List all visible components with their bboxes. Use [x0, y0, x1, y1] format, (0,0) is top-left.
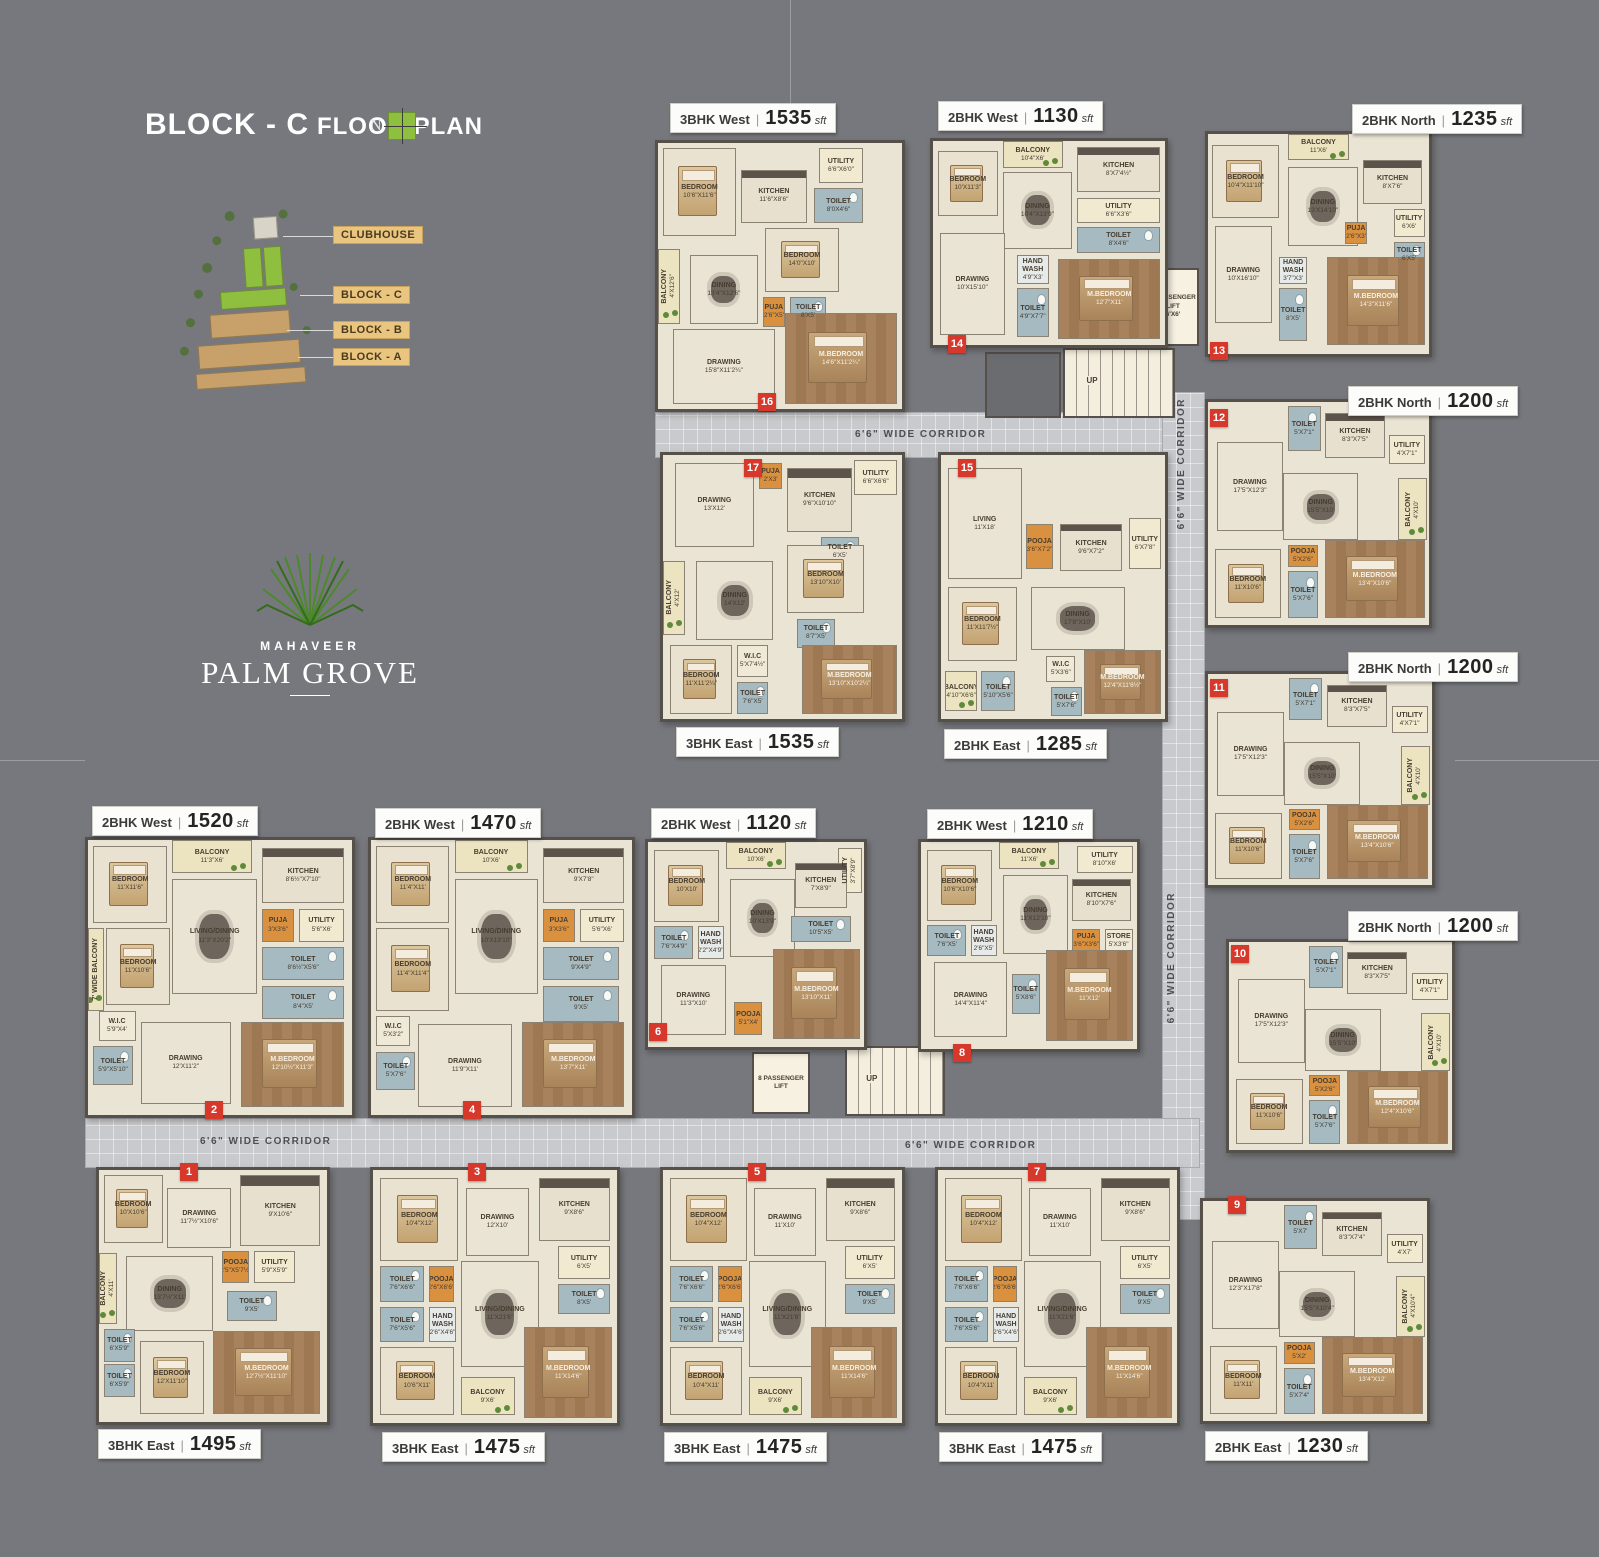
passenger-lift: 8 PASSENGERLIFT — [752, 1052, 810, 1114]
page-title-block: BLOCK - C — [145, 108, 309, 141]
room-label: BALCONY4'X12' — [666, 580, 682, 615]
page-title: BLOCK - CFLOOR PLAN — [145, 108, 483, 142]
room-kitchen: KITCHEN8'6½"X7'10" — [262, 848, 344, 903]
room-label: LIVING/DINING11'X21'6" — [475, 1306, 525, 1322]
room-label: 7' WIDE BALCONY — [92, 938, 100, 1000]
room-label: POOJA2'6"X6'6" — [429, 1276, 453, 1292]
room-label: TOILET8'7"X5' — [804, 625, 829, 641]
room-balcony: BALCONY10'X6' — [726, 842, 786, 869]
unit-8-number-badge: 8 — [953, 1044, 971, 1062]
unit-7-number-badge: 7 — [1028, 1163, 1046, 1181]
room-label: DINING13'4"X12'6" — [707, 282, 740, 298]
corridor-label: 6'6" WIDE CORRIDOR — [855, 429, 986, 440]
room-label: BEDROOM10'4"X11' — [963, 1373, 1000, 1389]
room-bedroom: BEDROOM11'X11'2¼" — [670, 645, 732, 714]
room-toilet: TOILET7'6"X6'6" — [670, 1266, 713, 1301]
room-label: W.I.C5'X3'2" — [383, 1023, 403, 1039]
room-pooja: POOJA5'X2'6" — [1289, 809, 1320, 830]
room-kitchen: KITCHEN8'X7'4½" — [1077, 147, 1161, 192]
room-toilet: TOILET9'X4'9" — [543, 947, 619, 980]
room-toilet: TOILET5'X7' — [1284, 1205, 1318, 1249]
room-label: M.BEDROOM13'4"X10'6" — [1353, 572, 1397, 588]
room-balcony: BALCONY10'X6' — [455, 840, 528, 873]
room-label: POOJA3'6"X7'2" — [1027, 538, 1053, 554]
unit-1-plan: BEDROOM10'X10'6"DRAWING11'7½"X10'6"KITCH… — [96, 1167, 330, 1425]
room-label: M.BEDROOM13'4"X10'6" — [1355, 834, 1399, 850]
room-label: UTILITY5'6"X6' — [308, 917, 334, 933]
room-label: UTILITY6'X5' — [856, 1255, 882, 1271]
room-w-i-c: W.I.C5'X3'6" — [1046, 656, 1075, 682]
room-label: TOILET8'X5' — [572, 1291, 597, 1307]
site-map-tree — [212, 236, 222, 246]
staircase: UP — [1063, 348, 1175, 418]
room-m-bedroom: M.BEDROOM13'7"X11' — [522, 1022, 624, 1107]
room-label: M.BEDROOM12'4"X10'6" — [1375, 1100, 1419, 1116]
unit-5-label: 3BHK East|1475sft — [664, 1432, 827, 1462]
site-map-block-a — [196, 366, 307, 390]
room-label: DRAWING15'8"X11'2¼" — [705, 359, 743, 375]
room-label: BALCONY9'X6' — [758, 1389, 793, 1405]
room-toilet: TOILET7'6"X4'9" — [654, 926, 693, 959]
room-puja: PUJA3'X3'6" — [543, 909, 574, 942]
room-toilet: TOILET9'X5' — [543, 986, 619, 1022]
room-store: STORE5'X3'6" — [1105, 929, 1133, 952]
unit-10-label: 2BHK North|1200sft — [1348, 911, 1518, 941]
room-hand-wash: HAND WASH4'9"X3' — [1017, 255, 1049, 284]
room-label: LIVING/DINING11'3"X20'2" — [190, 928, 240, 944]
room-bedroom: BEDROOM10'X10' — [654, 850, 719, 922]
room-label: HAND WASH2'2"X4'9" — [698, 931, 724, 955]
room-bedroom: BEDROOM14'0"X10' — [765, 228, 838, 292]
unit-12-number-badge: 12 — [1210, 409, 1228, 427]
room-label: BALCONY11'X6' — [1012, 848, 1047, 864]
room-label: BEDROOM10'4"X12' — [965, 1212, 1002, 1228]
site-map — [153, 184, 347, 401]
room-label: TOILET7'6"X5'6" — [389, 1317, 415, 1333]
north-indicator: N — [370, 112, 416, 140]
room-kitchen: KITCHEN8'10"X7'6" — [1072, 879, 1130, 920]
room-label: M.BEDROOM12'7½"X11'10" — [244, 1365, 288, 1381]
room-label: BALCONY4'X10' — [1428, 1025, 1444, 1060]
room-label: TOILET6'X5'9" — [107, 1373, 132, 1389]
unit-6-number-badge: 6 — [649, 1023, 667, 1041]
room-label: BALCONY4'X10' — [1405, 492, 1421, 527]
room-label: BEDROOM11'X11'2¼" — [683, 672, 720, 688]
unit-10-number-badge: 10 — [1231, 945, 1249, 963]
room-kitchen: KITCHEN9'6"X10'10" — [787, 468, 852, 531]
legend-connector-line — [283, 236, 333, 237]
room-bedroom: BEDROOM11'X11'6" — [93, 846, 167, 923]
room-label: TOILET9'X5' — [569, 996, 594, 1012]
room-label: DINING15'5"X10'4" — [1301, 1297, 1334, 1313]
room-label: DINING15'5"X10' — [1329, 1032, 1356, 1048]
unit-6-label: 2BHK West|1120sft — [651, 808, 816, 838]
legend-item-clubhouse: CLUBHOUSE — [333, 226, 423, 244]
room-label: BEDROOM11'X10'6" — [1229, 576, 1266, 592]
room-label: TOILET7'6"X5' — [740, 690, 765, 706]
room-label: DRAWING11'X10' — [768, 1214, 802, 1230]
room-label: UTILITY6'X5' — [1131, 1255, 1157, 1271]
room-bedroom: BEDROOM10'X11'3" — [938, 151, 998, 216]
room-dining: DINING11'X12'10" — [1003, 875, 1068, 954]
room-label: TOILET9'X5' — [239, 1298, 264, 1314]
room-dining: DINING10'4"X13'9" — [1003, 172, 1073, 250]
room-label: DRAWING14'4"X11'4" — [954, 992, 988, 1008]
room-m-bedroom: M.BEDROOM12'10½"X11'3" — [241, 1022, 344, 1107]
room-label: BEDROOM11'4"X11'4" — [394, 961, 431, 977]
room-hand-wash: HAND WASH3'7"X3' — [1279, 257, 1308, 283]
room-bedroom: BEDROOM10'4"X12' — [670, 1178, 746, 1261]
room-label: TOILET8'0X4'6" — [826, 198, 851, 214]
room-label: DRAWING11'7½"X10'6" — [180, 1210, 218, 1226]
room-label: DINING15'5"X10' — [1307, 499, 1334, 515]
room-label: KITCHEN8'6½"X7'10" — [286, 868, 321, 884]
room-label: M.BEDROOM12'10½"X11'3" — [270, 1056, 314, 1072]
room-bedroom: BEDROOM11'X10'6" — [1215, 813, 1282, 878]
room-label: M.BEDROOM14'6"X11'2¼" — [819, 351, 863, 367]
room-label: TOILET5'X7'6" — [1292, 849, 1317, 865]
room-drawing: DRAWING11'X10' — [754, 1188, 816, 1256]
room-label: TOILET5'X8'6" — [1013, 986, 1038, 1002]
room-label: M.BEDROOM12'4"X11'6½" — [1100, 674, 1144, 690]
room-label: TOILET8'4"X5' — [291, 994, 316, 1010]
room-label: BEDROOM10'X10'6" — [115, 1201, 152, 1217]
room-label: TOILET7'6"X6'6" — [954, 1276, 980, 1292]
room-label: KITCHEN8'3"X7'5" — [1339, 428, 1370, 444]
room-label: BALCONY11'X6' — [1301, 139, 1336, 155]
room-label: DINING13'7½"X11' — [154, 1286, 186, 1302]
room-label: KITCHEN7'X8'9" — [805, 877, 836, 893]
crease-line — [1455, 760, 1599, 761]
site-map-clubhouse — [253, 216, 278, 240]
room-label: DRAWING11'3"X10' — [676, 992, 710, 1008]
room-label: BALCONY11'3"X6' — [195, 849, 230, 865]
room-label: BEDROOM10'6"X11' — [399, 1373, 436, 1389]
room-label: BEDROOM10'X10' — [669, 878, 706, 894]
room-label: LIVING11'X18' — [973, 516, 996, 532]
room-label: TOILET5'9"X5'10" — [98, 1058, 128, 1074]
room-puja: PUJA2'6"X5' — [763, 297, 785, 326]
room-m-bedroom: M.BEDROOM11'X14'6" — [524, 1327, 612, 1418]
room-label: TOILET8'X5' — [1281, 307, 1306, 323]
room-label: W.I.C5'9"X4' — [107, 1018, 127, 1034]
unit-12-plan: TOILET5'X7'1"KITCHEN8'3"X7'5"UTILITY4'X7… — [1205, 399, 1432, 628]
room-label: TOILET6'X5' — [827, 544, 852, 560]
site-map-block-a — [198, 339, 301, 370]
corridor-label: 6'6" WIDE CORRIDOR — [905, 1140, 1036, 1151]
room-w-i-c: W.I.C5'X3'2" — [376, 1016, 410, 1046]
unit-13-label: 2BHK North|1235sft — [1352, 104, 1522, 134]
unit-7-label: 3BHK East|1475sft — [939, 1432, 1102, 1462]
room-label: POOJA5'X2'6" — [1291, 548, 1316, 564]
room-label: W.I.C5'X3'6" — [1051, 661, 1071, 677]
room-label: UTILITY6'X7'8" — [1132, 536, 1158, 552]
unit-15-label: 2BHK East|1285sft — [944, 729, 1107, 759]
room-pooja: POOJA5'1"X4' — [734, 1002, 762, 1035]
room-toilet: TOILET10'5"X5' — [791, 916, 851, 943]
room-bedroom: BEDROOM11'X10'6" — [1236, 1079, 1303, 1143]
room-toilet: TOILET8'7"X5' — [797, 619, 835, 648]
room-label: DINING15'5"X10' — [1309, 765, 1336, 781]
room-pooja: POOJA3'6"X7'2" — [1026, 524, 1053, 569]
unit-8-plan: BEDROOM10'6"X10'6"BALCONY11'X6'UTILITY8'… — [918, 839, 1140, 1052]
room-drawing: DRAWING12'3"X17'8" — [1212, 1241, 1279, 1329]
room-dining: DINING13'4"X12'6" — [690, 255, 758, 324]
room-label: KITCHEN9'X8'6" — [1120, 1201, 1151, 1217]
room-utility: UTILITY6'X5' — [845, 1246, 895, 1279]
room-utility: UTILITY6'X7'8" — [1129, 518, 1160, 568]
room-balcony: BALCONY11'X6' — [1288, 134, 1350, 160]
unit-11-plan: TOILET5'X7'1"KITCHEN8'3"X7'5"UTILITY4'X7… — [1205, 671, 1435, 888]
room-label: BEDROOM10'4"X12' — [690, 1212, 727, 1228]
room-label: BALCONY4'X11' — [100, 1271, 116, 1306]
room-label: POOJA2'6"X6'6" — [718, 1276, 742, 1292]
room-label: KITCHEN9'X8'6" — [845, 1201, 876, 1217]
room-drawing: DRAWING12'X11'2" — [141, 1022, 231, 1105]
room-kitchen: KITCHEN9'X8'6" — [1101, 1178, 1170, 1241]
room-label: PUJA2'6"X5' — [764, 304, 784, 320]
room-toilet: TOILET7'6"X5'6" — [670, 1307, 713, 1342]
room-utility: UTILITY4'X7'1" — [1392, 706, 1428, 733]
room-kitchen: KITCHEN9'6"X7'2" — [1060, 524, 1123, 572]
room-label: DRAWING11'9"X11' — [448, 1058, 482, 1074]
room-bedroom: BEDROOM11'4"X11'4" — [376, 928, 449, 1011]
room-label: BEDROOM13'10"X10' — [807, 571, 844, 587]
room-toilet: TOILET5'X7'6" — [1289, 834, 1320, 878]
unit-17-label: 3BHK East|1535sft — [676, 727, 839, 757]
room-bedroom: BEDROOM10'4"X11'10" — [1212, 145, 1278, 218]
room-label: DRAWING10'X16'10" — [1226, 267, 1260, 283]
room-label: TOILET8'6½"X5'6" — [287, 956, 318, 972]
corridor-label: 6'6" WIDE CORRIDOR — [1166, 892, 1177, 1023]
room-label: KITCHEN9'X10'6" — [265, 1203, 296, 1219]
room-dining: DINING15'5"X10' — [1305, 1009, 1381, 1071]
unit-16-plan: BEDROOM10'6"X11'6"KITCHEN11'6"X8'6"UTILI… — [655, 140, 905, 412]
room-label: TOILET7'6"X4'9" — [661, 935, 687, 951]
room-toilet: TOILET9'X5' — [1120, 1284, 1170, 1314]
room-toilet: TOILET8'X5' — [1279, 288, 1308, 341]
room-drawing: DRAWING17'5"X12'3" — [1238, 979, 1305, 1062]
room-label: POOJA2'6"X6'6" — [993, 1276, 1017, 1292]
unit-15-number-badge: 15 — [958, 459, 976, 477]
room-label: DRAWING17'5"X12'3" — [1254, 1013, 1288, 1029]
site-map-tree — [289, 283, 298, 292]
room-label: BALCONY9'X6' — [1033, 1389, 1068, 1405]
room-toilet: TOILET7'6"X6'6" — [945, 1266, 988, 1301]
room-dining: DINING10'X13'9" — [730, 879, 795, 957]
room-utility: UTILITY4'X7' — [1387, 1234, 1423, 1263]
room-kitchen: KITCHEN9'X8'6" — [826, 1178, 895, 1241]
unit-2-plan: BEDROOM11'X11'6"BALCONY11'3"X6'KITCHEN8'… — [85, 837, 355, 1118]
room-label: DRAWING12'3"X17'8" — [1229, 1277, 1263, 1293]
room-utility: UTILITY6'6"X3'6" — [1077, 198, 1161, 222]
unit-8-label: 2BHK West|1210sft — [927, 809, 1093, 839]
room-bedroom: BEDROOM10'4"X12' — [380, 1178, 458, 1261]
room-label: UTILITY6'6"X6'0" — [828, 158, 854, 174]
room-kitchen: KITCHEN9'X7'8" — [543, 848, 624, 903]
room-label: TOILET5'X7'6" — [1312, 1114, 1337, 1130]
room-drawing: DRAWING12'X10' — [466, 1188, 529, 1256]
room-label: DINING10'X13'9" — [749, 910, 776, 926]
crease-line — [790, 0, 791, 108]
room-utility: UTILITY6'X5' — [1120, 1246, 1170, 1279]
room-drawing: DRAWING14'4"X11'4" — [934, 962, 1007, 1037]
room-label: M.BEDROOM11'X14'6" — [1107, 1365, 1151, 1381]
unit-2-label: 2BHK West|1520sft — [92, 806, 258, 836]
room-bedroom: BEDROOM10'4"X12' — [945, 1178, 1021, 1261]
room-toilet: TOILET5'9"X5'10" — [93, 1046, 133, 1085]
room-label: BEDROOM10'6"X10'6" — [942, 878, 979, 894]
site-map-tree — [278, 209, 288, 219]
room-label: BEDROOM14'0"X10' — [784, 252, 821, 268]
room-toilet: TOILET8'4"X5' — [262, 986, 344, 1019]
room-label: PUJA3'6"X3'6" — [1073, 933, 1099, 949]
room-m-bedroom: M.BEDROOM12'4"X11'6½" — [1084, 650, 1160, 713]
room-label: BEDROOM11'X11'6" — [112, 876, 149, 892]
room-hand-wash: HAND WASH2'2"X4'9" — [698, 926, 724, 959]
room-kitchen: KITCHEN8'3"X7'4" — [1322, 1212, 1382, 1256]
room-label: PUJA3'X3'6" — [549, 917, 569, 933]
unit-3-number-badge: 3 — [468, 1163, 486, 1181]
room-label: BALCONY4'X12'6" — [661, 269, 677, 304]
room-pooja: POOJA5'X2' — [1284, 1342, 1315, 1364]
room-toilet: TOILET8'6½"X5'6" — [262, 947, 344, 980]
site-map-block-c — [243, 247, 264, 288]
room-label: TOILET5'X7'6" — [1054, 694, 1079, 710]
room-label: DRAWING13'X12' — [697, 497, 731, 513]
room-bedroom: BEDROOM10'6"X11' — [380, 1347, 453, 1415]
room-toilet: TOILET8'X4'6" — [1077, 227, 1161, 254]
unit-16-label: 3BHK West|1535sft — [670, 103, 836, 133]
room-label: UTILITY4'X7'1" — [1394, 442, 1420, 458]
room-7-wide-balcony: 7' WIDE BALCONY — [88, 928, 104, 1011]
unit-7-plan: BEDROOM10'4"X12'DRAWING11'X10'KITCHEN9'X… — [935, 1167, 1180, 1426]
room-toilet: TOILET7'6"X5' — [927, 925, 966, 956]
room-toilet: TOILET5'X7'1" — [1289, 678, 1323, 720]
unit-4-plan: BEDROOM11'4"X11'BALCONY10'X6'KITCHEN9'X7… — [368, 837, 635, 1118]
room-m-bedroom: M.BEDROOM14'3"X11'6" — [1327, 257, 1424, 345]
room-label: KITCHEN11'6"X8'6" — [758, 188, 789, 204]
room-label: BALCONY9'X6' — [470, 1389, 505, 1405]
room-toilet: TOILET7'6"X5'6" — [945, 1307, 988, 1342]
room-utility: UTILITY5'6"X6' — [580, 909, 624, 942]
room-bedroom: BEDROOM12'X11'10" — [140, 1341, 204, 1414]
room-label: KITCHEN8'X7'6" — [1377, 175, 1408, 191]
room-label: POOJA2'5"X5'7½" — [222, 1259, 249, 1275]
room-label: KITCHEN8'X7'4½" — [1103, 162, 1134, 178]
room-label: HAND WASH4'9"X3' — [1018, 258, 1048, 282]
room-label: DRAWING11'X10' — [1043, 1214, 1077, 1230]
unit-2-number-badge: 2 — [205, 1101, 223, 1119]
room-toilet: TOILET5'X8'6" — [1012, 974, 1040, 1013]
room-drawing: DRAWING11'9"X11' — [418, 1024, 512, 1107]
room-label: HAND WASH2'6"X4'6" — [430, 1313, 456, 1337]
room-pooja: POOJA2'5"X5'7½" — [222, 1251, 249, 1284]
room-label: BEDROOM11'X10'6" — [120, 959, 157, 975]
room-label: BEDROOM10'4"X11'10" — [1227, 174, 1264, 190]
room-balcony: BALCONY4'X10' — [1401, 746, 1430, 805]
room-drawing: DRAWING10'X15'10" — [940, 233, 1005, 335]
room-label: UTILITY6'6"X3'6" — [1105, 203, 1131, 219]
room-m-bedroom: M.BEDROOM13'10"X10'2¼" — [802, 645, 898, 714]
unit-14-label: 2BHK West|1130sft — [938, 101, 1103, 131]
room-label: DRAWING12'X10' — [481, 1214, 515, 1230]
room-label: BEDROOM11'X11' — [1225, 1373, 1262, 1389]
unit-5-number-badge: 5 — [748, 1163, 766, 1181]
room-m-bedroom: M.BEDROOM12'7"X11' — [1058, 259, 1160, 339]
room-kitchen: KITCHEN8'3"X7'5" — [1347, 952, 1407, 994]
room-label: TOILET4'9"X7'7" — [1020, 305, 1046, 321]
unit-13-number-badge: 13 — [1210, 342, 1228, 360]
room-label: UTILITY6'X6' — [1396, 215, 1422, 231]
room-puja: PUJA3'X3'6" — [262, 909, 294, 942]
unit-13-plan: BEDROOM10'4"X11'10"BALCONY11'X6'KITCHEN8… — [1205, 131, 1432, 357]
room-label: TOILET6'X5'9" — [107, 1337, 132, 1353]
room-utility: UTILITY4'X7'1" — [1389, 435, 1424, 464]
room-utility: UTILITY4'X7'1" — [1412, 973, 1448, 1000]
unit-14-plan: BEDROOM10'X11'3"BALCONY10'4"X6'KITCHEN8'… — [930, 138, 1168, 348]
site-map-tree — [224, 211, 235, 222]
room-drawing: DRAWING17'5"X12'3" — [1217, 712, 1284, 796]
room-label: BEDROOM12'X11'10" — [154, 1370, 191, 1386]
room-label: M.BEDROOM11'X12' — [1067, 987, 1111, 1003]
room-dining: DINING17'8"X10' — [1031, 587, 1125, 650]
room-balcony: BALCONY10'4"X6' — [1003, 141, 1063, 168]
room-kitchen: KITCHEN7'X8'9" — [795, 863, 847, 908]
room-toilet: TOILET5'X7'1" — [1288, 406, 1321, 451]
room-toilet: TOILET5'X7'4" — [1284, 1368, 1315, 1414]
room-label: DINING13'X14'10" — [1307, 199, 1338, 215]
room-kitchen: KITCHEN9'X10'6" — [240, 1175, 320, 1246]
room-balcony: BALCONY4'10"X6'6" — [945, 671, 976, 711]
room-m-bedroom: M.BEDROOM11'X12' — [1046, 950, 1132, 1041]
unit-9-label: 2BHK East|1230sft — [1205, 1431, 1368, 1461]
room-label: TOILET5'X7' — [1288, 1220, 1313, 1236]
room-label: M.BEDROOM11'X14'6" — [546, 1365, 590, 1381]
room-label: HAND WASH2'6"X4'6" — [718, 1313, 744, 1337]
room-label: BEDROOM11'4"X11' — [394, 876, 431, 892]
unit-4-number-badge: 4 — [463, 1101, 481, 1119]
room-utility: UTILITY6'X5' — [558, 1246, 609, 1279]
room-label: M.BEDROOM13'7"X11' — [551, 1056, 595, 1072]
room-kitchen: KITCHEN8'X7'6" — [1363, 160, 1423, 204]
legend-connector-line — [300, 295, 333, 296]
room-hand-wash: HAND WASH2'6"X4'6" — [993, 1307, 1019, 1342]
room-label: BEDROOM11'X10'6" — [1230, 838, 1267, 854]
unit-3-plan: BEDROOM10'4"X12'DRAWING12'X10'KITCHEN9'X… — [370, 1167, 620, 1426]
room-label: TOILET5'X7'1" — [1292, 421, 1317, 437]
room-label: PUJA3'X3'6" — [268, 917, 288, 933]
site-map-tree — [186, 318, 196, 328]
north-compass-icon — [388, 112, 416, 140]
room-label: M.BEDROOM13'10"X11' — [794, 986, 838, 1002]
room-label: M.BEDROOM13'10"X10'2¼" — [827, 672, 871, 688]
room-label: TOILET7'6"X6'6" — [679, 1276, 705, 1292]
room-m-bedroom: M.BEDROOM12'7½"X11'10" — [213, 1331, 320, 1414]
room-label: LIVING/DINING11'X21'6" — [762, 1306, 812, 1322]
unit-17-plan: DRAWING13'X12'PUJA2'X3'KITCHEN9'6"X10'10… — [660, 452, 905, 722]
room-label: W.I.C5'X7'4½" — [740, 653, 765, 669]
room-utility: UTILITY6'X6' — [1394, 209, 1425, 238]
unit-1-number-badge: 1 — [180, 1163, 198, 1181]
room-hand-wash: HAND WASH2'6"X4'6" — [718, 1307, 744, 1342]
room-label: PUJA2'X3' — [761, 468, 780, 484]
room-living-dining: LIVING/DINING10'X19'10" — [455, 879, 539, 995]
room-bedroom: BEDROOM11'X10'6" — [106, 928, 169, 1005]
logo-rule — [290, 695, 330, 696]
room-label: BALCONY4'X10' — [1407, 758, 1423, 793]
site-map-tree — [194, 289, 204, 299]
